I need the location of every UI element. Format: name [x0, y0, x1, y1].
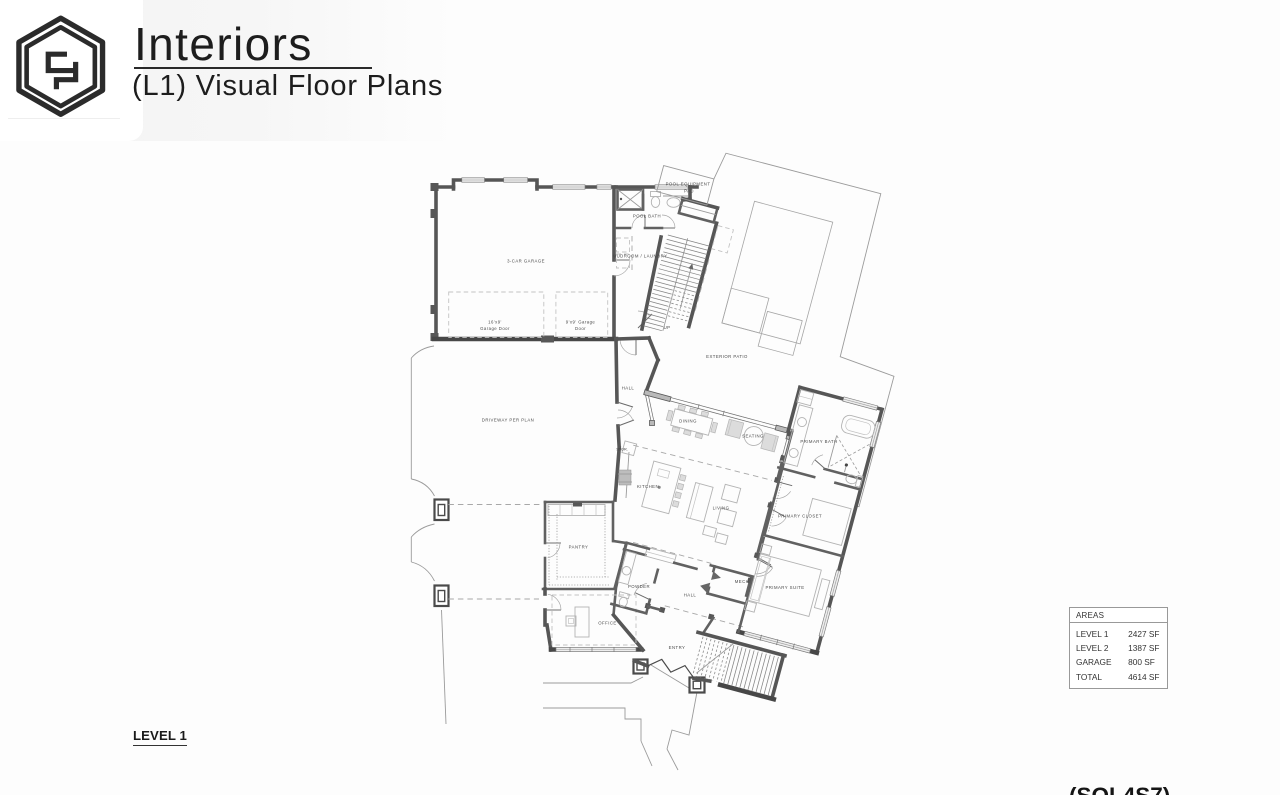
svg-text:HALL: HALL [684, 593, 697, 598]
svg-text:POWDER: POWDER [628, 584, 650, 589]
svg-text:STOR.: STOR. [616, 448, 628, 452]
svg-text:PRIMARY CLOSET: PRIMARY CLOSET [778, 514, 822, 519]
svg-text:PRIMARY BATH: PRIMARY BATH [800, 439, 837, 444]
svg-text:LIVING: LIVING [713, 506, 730, 511]
svg-text:SEATING: SEATING [742, 434, 764, 439]
svg-text:DRIVEWAY PER PLAN: DRIVEWAY PER PLAN [482, 418, 534, 423]
svg-text:PRIMARY SUITE: PRIMARY SUITE [765, 585, 804, 590]
svg-text:HALL: HALL [622, 386, 635, 391]
svg-text:MECH: MECH [735, 579, 749, 584]
svg-text:DINING: DINING [679, 419, 697, 424]
svg-text:POOL BATH: POOL BATH [633, 214, 661, 219]
svg-text:POOL EQUIPMENT: POOL EQUIPMENT [666, 182, 711, 187]
svg-text:Garage Door: Garage Door [480, 326, 510, 331]
svg-text:Door: Door [575, 326, 586, 331]
svg-text:KITCHEN: KITCHEN [637, 484, 659, 489]
svg-text:ENTRY: ENTRY [669, 645, 686, 650]
svg-text:16'x9': 16'x9' [488, 320, 502, 325]
svg-text:UP: UP [664, 325, 671, 330]
svg-text:PANTRY: PANTRY [569, 545, 589, 550]
svg-text:PAD: PAD [684, 189, 694, 194]
svg-text:OFFICE: OFFICE [598, 621, 616, 626]
svg-text:9'x9' Garage: 9'x9' Garage [566, 320, 596, 325]
svg-text:3-CAR GARAGE: 3-CAR GARAGE [507, 259, 545, 264]
svg-text:MUDROOM / LAUNDRY: MUDROOM / LAUNDRY [613, 254, 668, 259]
svg-text:EXTERIOR PATIO: EXTERIOR PATIO [706, 354, 748, 359]
